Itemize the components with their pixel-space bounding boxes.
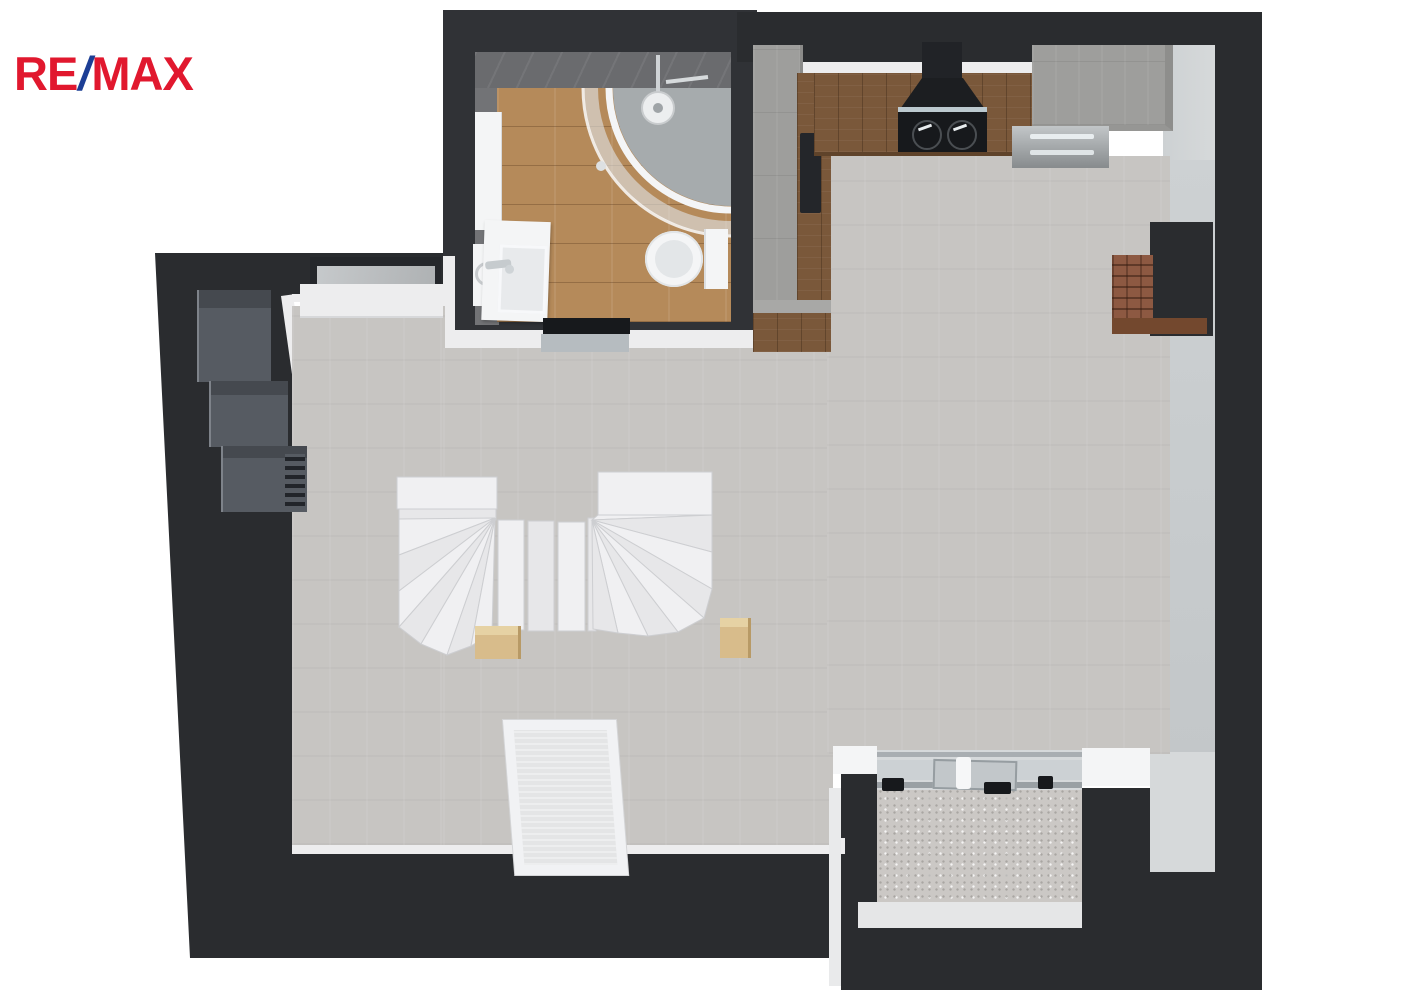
stair-post bbox=[720, 618, 751, 658]
stair-post bbox=[475, 626, 521, 659]
stair-landing-right bbox=[598, 472, 712, 515]
brick-chimney-side bbox=[1112, 318, 1207, 334]
toilet-tank bbox=[704, 229, 728, 289]
shower-soap-dish bbox=[596, 161, 606, 171]
logo-max: MAX bbox=[91, 47, 192, 100]
shower-bar bbox=[666, 77, 708, 82]
shower-head-center bbox=[653, 103, 663, 113]
door-fitting bbox=[984, 782, 1011, 794]
oven-handle bbox=[1030, 134, 1094, 139]
floor-right bbox=[827, 156, 1170, 754]
balcony-floor bbox=[877, 788, 1082, 906]
balcony-wall-cap-right bbox=[1082, 748, 1150, 786]
bathroom-door-panel bbox=[541, 334, 629, 352]
right-wall-lower-face bbox=[1150, 752, 1215, 872]
cooktop bbox=[898, 112, 987, 152]
toilet-bowl-inner bbox=[655, 240, 693, 278]
oven-handle bbox=[1030, 150, 1094, 155]
balcony-wall-outer-face bbox=[829, 788, 841, 986]
logo-slash: / bbox=[77, 47, 91, 100]
wardrobe-unit bbox=[221, 446, 307, 512]
hood-duct bbox=[922, 42, 962, 80]
wardrobe-vent-slats bbox=[285, 454, 305, 506]
window-sill bbox=[300, 284, 443, 318]
wardrobe-unit bbox=[197, 290, 271, 382]
floor-plan-canvas: RE/MAX bbox=[0, 0, 1415, 1000]
balcony-bottom-wall bbox=[841, 926, 1160, 990]
brick-chimney bbox=[1112, 255, 1153, 321]
door-fitting bbox=[882, 778, 904, 791]
stair-step bbox=[498, 520, 524, 630]
balcony-ledge bbox=[858, 902, 1082, 928]
wardrobe-unit bbox=[209, 381, 288, 447]
vanity-basin bbox=[498, 244, 548, 314]
roof-window-frame bbox=[503, 720, 628, 875]
logo-re: RE bbox=[14, 47, 77, 100]
wardrobe-top-face bbox=[199, 290, 271, 308]
bottom-right-wall-block bbox=[1118, 872, 1262, 990]
stair-step bbox=[528, 521, 554, 631]
toilet-bowl bbox=[645, 231, 703, 287]
staircase bbox=[390, 465, 760, 680]
balcony-wall-cap-left bbox=[833, 746, 877, 774]
stair-step bbox=[558, 522, 585, 631]
kitchen-bench-top bbox=[753, 300, 831, 313]
remax-logo: RE/MAX bbox=[14, 50, 193, 97]
stair-landing-left bbox=[397, 477, 497, 509]
wardrobe-top-face bbox=[211, 381, 288, 395]
oven-front bbox=[1012, 126, 1109, 168]
kitchen-bench bbox=[753, 300, 831, 352]
bathroom-door-threshold bbox=[543, 318, 630, 334]
vanity-sink bbox=[481, 220, 550, 322]
door-rail-top bbox=[877, 752, 1082, 757]
right-wall bbox=[1213, 12, 1262, 880]
sliding-door bbox=[877, 750, 1082, 790]
door-fitting bbox=[1038, 776, 1053, 789]
door-handle bbox=[956, 757, 971, 789]
kitchen-tall-cabinet bbox=[753, 45, 803, 302]
fridge-cabinet bbox=[1032, 45, 1173, 131]
